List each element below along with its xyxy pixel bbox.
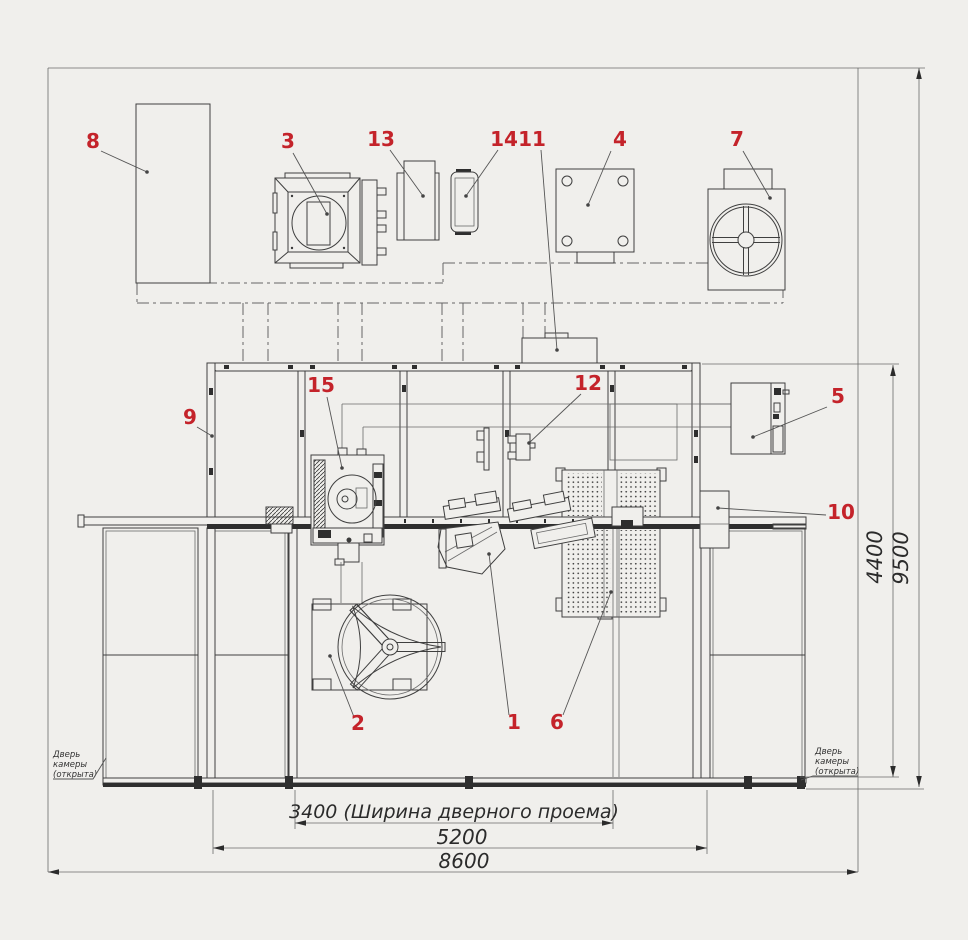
turntable-arm-nw <box>350 604 389 645</box>
callout-12-label: 12 <box>574 371 602 395</box>
callout-11: 11 <box>518 127 559 352</box>
callout-13-label: 13 <box>367 127 395 151</box>
dim-4400-label: 4400 <box>863 530 887 583</box>
turntable-arm-3 <box>350 648 389 690</box>
callout-12: 12 <box>527 371 602 445</box>
door-note-left-line3: (открыта) <box>53 770 97 780</box>
cabinet-5 <box>700 383 789 454</box>
box-10 <box>700 491 729 548</box>
fan-unit-7 <box>708 169 785 290</box>
callout-1-label: 1 <box>507 710 521 734</box>
callout-3-label: 3 <box>281 129 295 153</box>
door-open-note-left: Дверь камеры (открыта) <box>52 750 106 780</box>
welding-table-6 <box>556 468 666 619</box>
door-panel-left-outer <box>103 528 198 785</box>
door-panel-right <box>710 528 805 785</box>
floor-plan-drawing: 3400 (Ширина дверного проема) 5200 8600 … <box>0 0 968 940</box>
connector-stubs <box>377 188 386 255</box>
door-panel-left-inner <box>212 528 288 785</box>
floor-track <box>103 776 806 789</box>
callout-2: 2 <box>328 654 365 735</box>
dim-8600-label: 8600 <box>439 849 490 873</box>
dim-door-width: 3400 (Ширина дверного проема) <box>289 790 619 829</box>
callout-5-label: 5 <box>831 384 845 408</box>
callout-8-label: 8 <box>86 129 100 153</box>
callout-1: 1 <box>487 552 521 734</box>
dim-door-width-label: 3400 (Ширина дверного проема) <box>289 801 619 823</box>
dim-9500-label: 9500 <box>889 531 913 584</box>
callout-14-label: 14 <box>490 127 518 151</box>
callout-10-label: 10 <box>827 500 855 524</box>
equipment-row <box>136 104 785 290</box>
dim-9500: 9500 <box>806 68 924 789</box>
dim-5200-label: 5200 <box>437 825 488 849</box>
door-note-right-line1: Дверь <box>814 747 842 757</box>
door-note-right-line3: (открыта) <box>815 767 859 777</box>
callout-2-label: 2 <box>351 711 365 735</box>
door-open-note-right: Дверь камеры (открыта) <box>801 747 859 780</box>
machine-3-rotary-unit <box>273 173 386 268</box>
machine-15-unit <box>311 448 384 603</box>
floor-plan-page: 3400 (Ширина дверного проема) 5200 8600 … <box>0 0 968 940</box>
door-note-left-line1: Дверь <box>52 750 80 760</box>
callout-6-label: 6 <box>550 710 564 734</box>
machine-8-cabinet <box>136 104 210 283</box>
callout-14: 14 <box>464 127 518 198</box>
cable-routing-lines <box>136 263 783 361</box>
callout-4-label: 4 <box>613 127 627 151</box>
machine-13-module <box>397 161 439 240</box>
door-note-left-line2: камеры <box>53 760 87 770</box>
callout-15-label: 15 <box>307 373 335 397</box>
callout-11-label: 11 <box>518 127 546 151</box>
machine-14-module <box>451 169 478 235</box>
callout-7-label: 7 <box>730 127 744 151</box>
turntable-2 <box>312 595 445 699</box>
door-rail-track <box>78 515 806 529</box>
callout-9-label: 9 <box>183 405 197 429</box>
beam-tick-marks <box>209 365 698 475</box>
rail-carriage-right <box>612 507 643 527</box>
robot-1 <box>438 491 505 574</box>
turntable-arm-1 <box>350 604 389 645</box>
roof-box-11 <box>522 333 597 363</box>
door-note-right-line2: камеры <box>815 757 849 767</box>
machine-4-plate <box>556 169 634 263</box>
dim-8600: 8600 <box>48 849 858 875</box>
